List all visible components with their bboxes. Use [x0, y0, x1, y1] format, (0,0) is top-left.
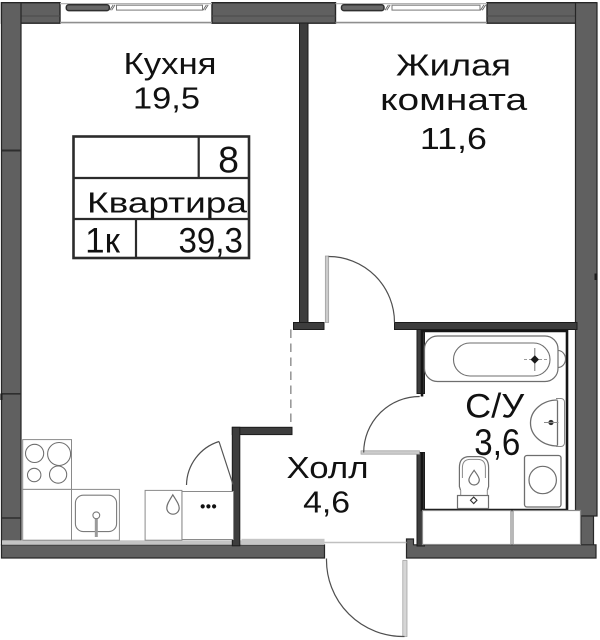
svg-text:3,6: 3,6: [474, 422, 520, 463]
svg-text:Жилая: Жилая: [396, 47, 511, 82]
svg-text:8: 8: [218, 138, 239, 180]
svg-text:19,5: 19,5: [133, 81, 200, 116]
svg-text:4,6: 4,6: [303, 485, 350, 520]
svg-text:С/У: С/У: [465, 388, 524, 426]
svg-text:11,6: 11,6: [420, 121, 487, 156]
svg-text:Холл: Холл: [287, 450, 369, 485]
svg-text:Кухня: Кухня: [124, 46, 217, 81]
svg-text:Квартира: Квартира: [87, 187, 248, 219]
svg-text:1к: 1к: [85, 222, 120, 261]
svg-text:комната: комната: [380, 82, 528, 117]
svg-text:39,3: 39,3: [178, 222, 243, 261]
